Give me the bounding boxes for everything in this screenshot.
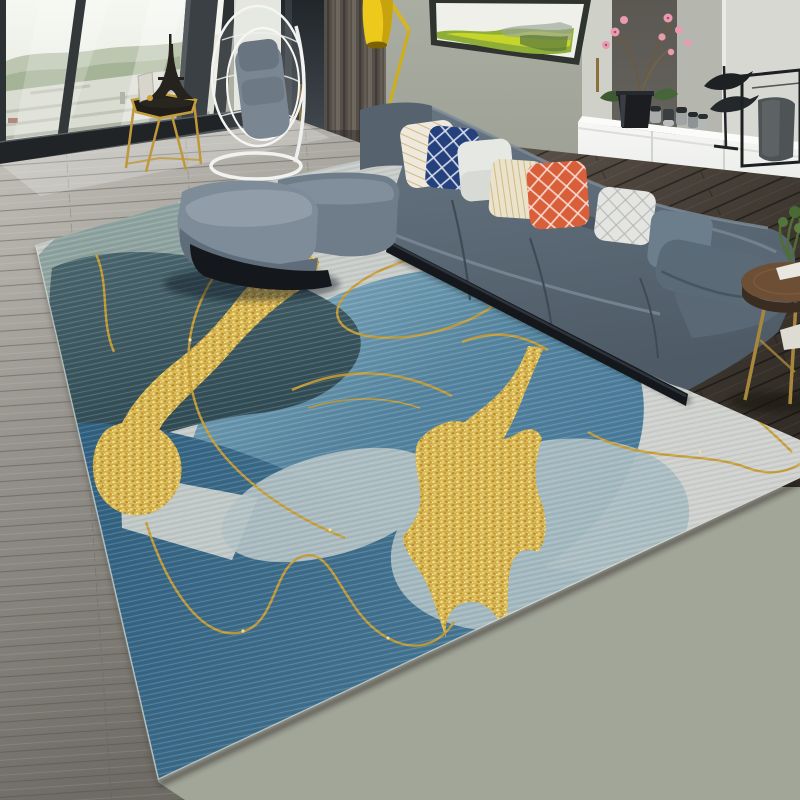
door-handle	[596, 58, 599, 92]
pillow-coral-lattice	[526, 160, 590, 230]
cup	[688, 112, 698, 128]
gold-trinket	[147, 95, 153, 101]
blossom	[684, 39, 691, 46]
cup	[698, 114, 708, 130]
blossom	[675, 26, 683, 34]
pillow-pattern	[593, 186, 657, 247]
living-room-photo	[0, 0, 800, 800]
blossom	[620, 16, 628, 24]
blossom	[658, 33, 665, 40]
cup-band	[663, 120, 674, 126]
cup-lid	[688, 112, 698, 117]
pillow-grey-lattice	[593, 186, 657, 247]
eiffel-deck	[158, 77, 184, 80]
cup-lid	[650, 106, 661, 112]
window-frame-left	[0, 0, 6, 160]
blossom-center	[667, 17, 670, 20]
cup-lid	[676, 107, 687, 113]
cup-lid	[698, 114, 708, 119]
blossom-center	[614, 31, 617, 34]
pillow-pattern	[526, 160, 590, 230]
blossom-center	[605, 44, 607, 46]
scene-canvas	[0, 0, 800, 800]
vase-highlight	[762, 100, 780, 157]
cup	[650, 106, 661, 123]
cup	[676, 107, 687, 125]
chair-lumbar	[240, 76, 285, 107]
cup	[663, 109, 674, 126]
plant-leaf	[778, 217, 788, 227]
lamp-opening	[367, 42, 387, 49]
blossom	[668, 49, 674, 55]
city-tower	[120, 92, 125, 104]
chair-headrest	[237, 38, 280, 73]
